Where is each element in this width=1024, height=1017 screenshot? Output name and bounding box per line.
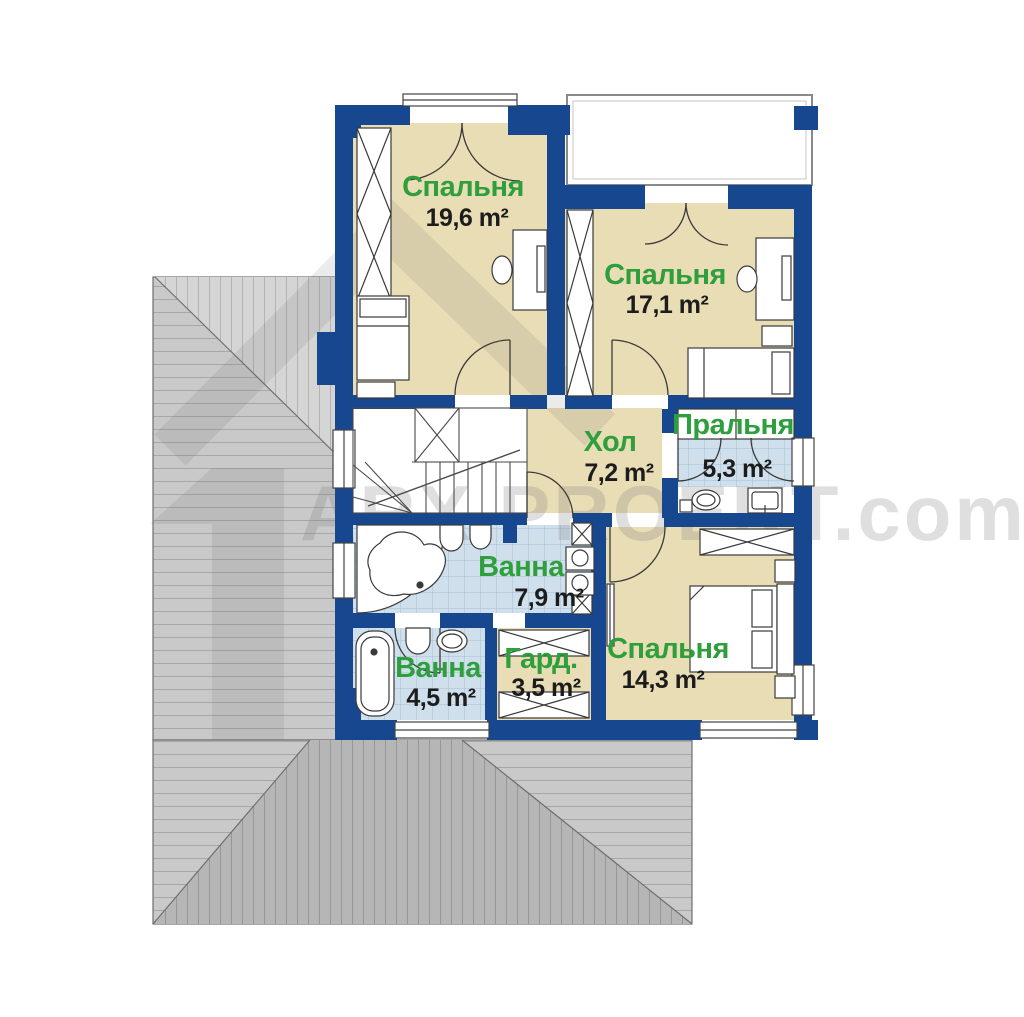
label-laundry-area: 5,3 m² — [702, 455, 771, 483]
bathroom-1-cabinet-top — [572, 523, 592, 545]
label-hall-area: 7,2 m² — [584, 459, 653, 487]
label-wardrobe-area: 3,5 m² — [511, 674, 580, 702]
label-bedroom-2-area: 17,1 m² — [626, 291, 709, 319]
window-bedroom-3-bottom — [700, 722, 797, 738]
label-wardrobe-name: Гард. — [504, 643, 577, 675]
bathroom-1-sink-top — [566, 547, 594, 570]
toilet-bathroom-2 — [406, 628, 430, 654]
label-bathroom-2-name: Ванна — [395, 652, 482, 684]
bathtub-bathroom-2 — [356, 631, 394, 716]
floor-plan-drawing: ARX PROEKT.com — [0, 0, 1024, 1017]
label-bathroom-1-area: 7,9 m² — [514, 584, 583, 612]
wardrobe-bedroom-1 — [357, 128, 391, 300]
stair-closet — [415, 408, 459, 462]
label-laundry-name: Пральня — [672, 409, 794, 441]
label-hall-name: Хол — [584, 426, 637, 458]
floor-plan-page: ARX PROEKT.com — [0, 0, 1024, 1017]
window-laundry-right — [792, 438, 814, 486]
label-bedroom-1-area: 19,6 m² — [426, 204, 509, 232]
window-stairs-left — [333, 430, 355, 488]
label-bedroom-3-area: 14,3 m² — [622, 666, 705, 694]
label-bathroom-2-area: 4,5 m² — [406, 684, 475, 712]
nightstand-bedroom-3-top — [775, 560, 795, 582]
roof-bottom-wing — [153, 740, 692, 924]
sink-bathroom-2 — [437, 630, 467, 652]
wardrobe-bedroom-3 — [700, 529, 794, 555]
label-bathroom-1-name: Ванна — [478, 551, 565, 583]
window-bathroom-2-bottom — [395, 722, 489, 738]
window-sill-bedroom-1-top — [403, 94, 517, 106]
toilet-bathroom-1 — [440, 525, 463, 551]
bidet-bathroom-1 — [470, 525, 491, 549]
window-bathroom-1-left — [333, 543, 355, 598]
bed-bedroom-2 — [688, 348, 794, 398]
wardrobe-bedroom-2 — [567, 210, 593, 396]
label-bedroom-2-name: Спальня — [604, 259, 726, 291]
label-bedroom-1-name: Спальня — [402, 171, 524, 203]
washing-machine — [748, 488, 782, 513]
terrace — [567, 95, 812, 185]
nightstand-bedroom-2 — [762, 326, 792, 346]
nightstand-bedroom-3-bottom — [775, 676, 795, 698]
label-bedroom-3-name: Спальня — [607, 633, 729, 665]
